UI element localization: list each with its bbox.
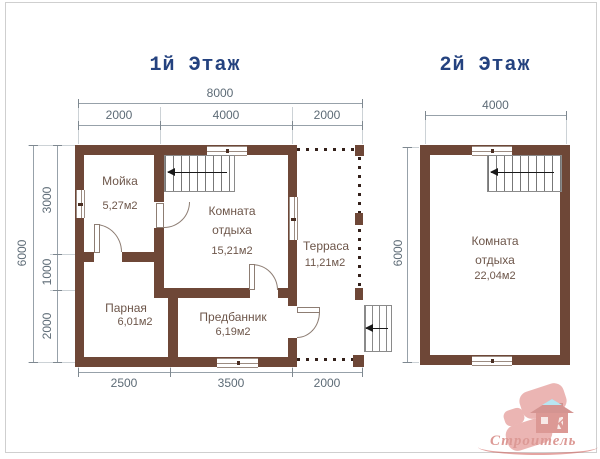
terrace-edge-bottom bbox=[297, 358, 353, 361]
window-left bbox=[76, 190, 85, 218]
dim-tick bbox=[78, 99, 79, 108]
floor1-dim-bottom-seg3: 2000 bbox=[292, 376, 362, 390]
floor1-dim-left-seg3: 2000 bbox=[40, 296, 54, 356]
floor1-dim-left-seg2: 1000 bbox=[40, 242, 54, 302]
room-label: Комната отдыха bbox=[196, 202, 268, 240]
window-bottom bbox=[472, 356, 512, 366]
dimension-line bbox=[407, 147, 408, 362]
logo-swoosh bbox=[478, 439, 598, 455]
floor1-dim-top-total: 8000 bbox=[190, 86, 250, 100]
room-area: 11,21м2 bbox=[299, 257, 351, 269]
stair-direction-arrow-icon bbox=[491, 172, 554, 173]
window-right bbox=[289, 197, 298, 240]
floor1-dim-top-seg1: 2000 bbox=[78, 108, 160, 122]
wall-top bbox=[75, 145, 297, 155]
entry-arrow-icon bbox=[366, 328, 388, 329]
room-area: 6,19м2 bbox=[192, 326, 274, 338]
floor-plan-page: 1й Этаж 8000 2000 4000 2000 6000 3000 10… bbox=[0, 0, 600, 459]
dim-tick bbox=[403, 362, 412, 363]
floor2-title: 2й Этаж bbox=[390, 54, 580, 77]
dim-tick bbox=[78, 121, 79, 130]
window-bottom bbox=[217, 358, 258, 368]
door-leaf bbox=[156, 203, 164, 228]
builder-logo: К Строитель bbox=[478, 383, 600, 459]
room-label: Предбанник bbox=[192, 308, 274, 327]
room-area: 22,04м2 bbox=[457, 270, 533, 282]
dimension-line bbox=[78, 372, 362, 373]
room-area: 6,01м2 bbox=[103, 316, 167, 328]
floor1-dim-bottom-seg2: 3500 bbox=[170, 376, 292, 390]
floor2-dim-top-total: 4000 bbox=[425, 98, 566, 112]
dimension-line bbox=[425, 115, 566, 116]
room-label: Комната отдыха bbox=[457, 232, 533, 270]
dim-tick bbox=[29, 145, 38, 146]
floor2-dim-left-total: 6000 bbox=[391, 223, 405, 283]
dim-tick bbox=[53, 362, 62, 363]
terrace-post bbox=[355, 288, 363, 300]
wall-left bbox=[75, 145, 84, 367]
dim-tick bbox=[362, 368, 363, 377]
door-opening bbox=[288, 306, 297, 338]
dimension-line bbox=[78, 125, 362, 126]
wall-interior-parnaya-right bbox=[168, 298, 178, 357]
dimension-line bbox=[78, 103, 362, 104]
floor1-dim-bottom-seg1: 2500 bbox=[78, 376, 170, 390]
dim-tick bbox=[403, 147, 412, 148]
door-leaf bbox=[297, 307, 320, 313]
wall-left bbox=[420, 145, 430, 365]
dim-tick bbox=[53, 290, 62, 291]
terrace-post bbox=[355, 145, 364, 156]
dim-tick bbox=[160, 121, 161, 130]
room-area: 15,21м2 bbox=[196, 245, 268, 257]
dim-tick bbox=[362, 99, 363, 108]
wall-bottom bbox=[75, 357, 297, 367]
dim-tick bbox=[53, 145, 62, 146]
floor1-dim-left-seg1: 3000 bbox=[40, 170, 54, 230]
dim-tick bbox=[362, 121, 363, 130]
floor1-dim-left-total: 6000 bbox=[15, 223, 29, 283]
terrace-post bbox=[353, 355, 364, 367]
terrace-post bbox=[355, 213, 363, 225]
staircase bbox=[487, 155, 562, 192]
dim-tick bbox=[29, 362, 38, 363]
dim-tick bbox=[53, 254, 62, 255]
dim-tick bbox=[566, 111, 567, 120]
door-opening bbox=[94, 252, 122, 262]
room-label: Мойка bbox=[85, 172, 155, 191]
floor1-dim-top-seg3: 2000 bbox=[292, 108, 362, 122]
dimension-line bbox=[33, 145, 34, 362]
room-label: Терраса bbox=[300, 237, 352, 256]
dim-tick bbox=[292, 121, 293, 130]
floor1-dim-top-seg2: 4000 bbox=[160, 108, 292, 122]
door-leaf bbox=[249, 264, 255, 290]
dim-tick bbox=[425, 111, 426, 120]
stair-direction-arrow-icon bbox=[168, 172, 227, 173]
door-leaf bbox=[94, 224, 100, 253]
room-area: 5,27м2 bbox=[85, 200, 155, 212]
terrace-edge-top bbox=[297, 148, 355, 151]
floor1-title: 1й Этаж bbox=[100, 54, 290, 77]
